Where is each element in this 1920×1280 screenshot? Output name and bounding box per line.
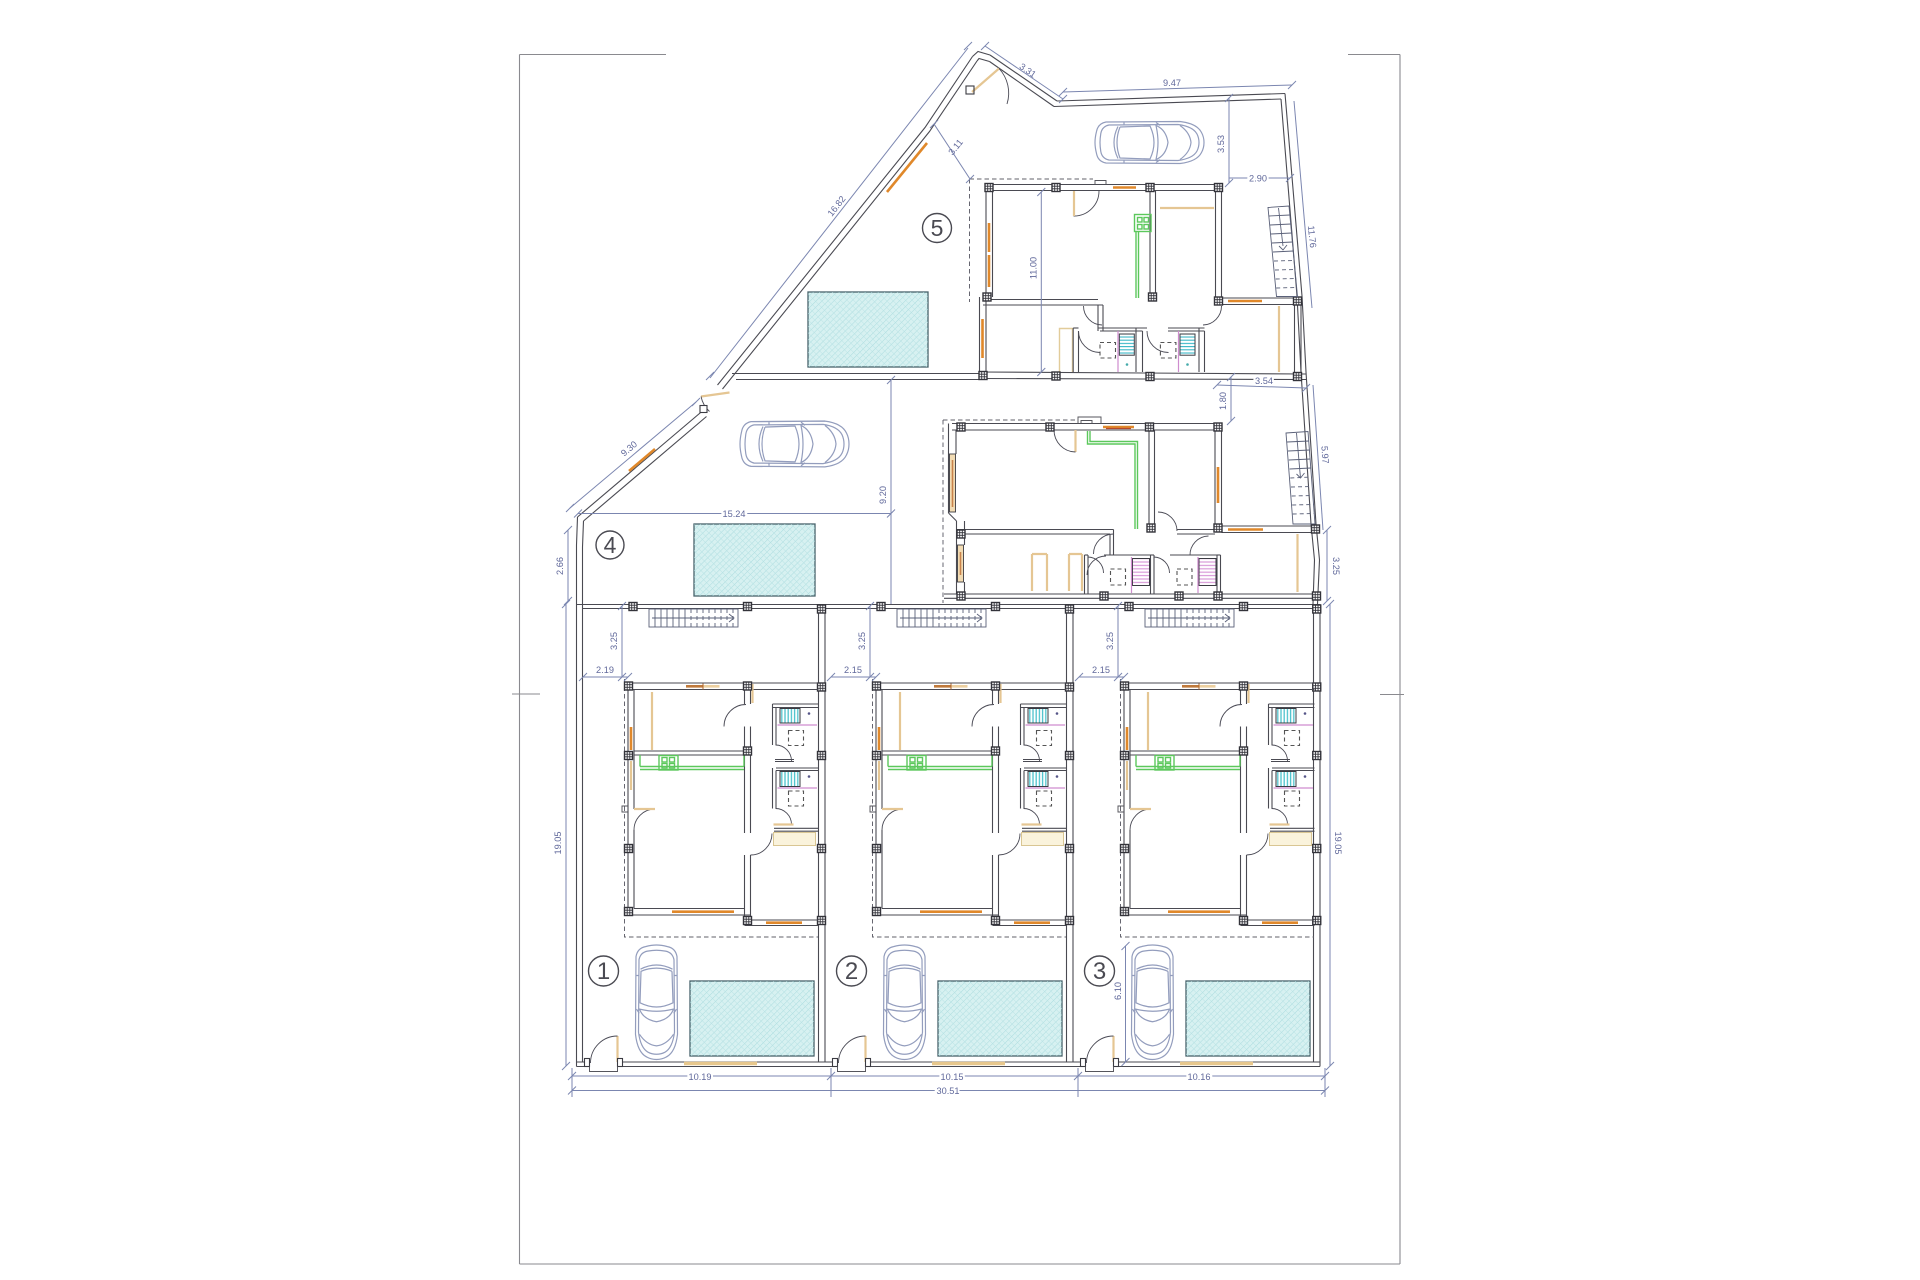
svg-text:10.19: 10.19 xyxy=(689,1072,712,1082)
svg-text:11.00: 11.00 xyxy=(1029,257,1039,279)
svg-text:2.15: 2.15 xyxy=(1092,665,1110,675)
svg-text:5.97: 5.97 xyxy=(1319,446,1330,465)
svg-text:5: 5 xyxy=(931,215,944,241)
svg-text:6.10: 6.10 xyxy=(1113,982,1123,1000)
svg-text:3: 3 xyxy=(1093,958,1106,985)
svg-text:3.25: 3.25 xyxy=(609,632,619,650)
svg-text:2: 2 xyxy=(845,958,858,985)
svg-text:3.25: 3.25 xyxy=(857,632,867,650)
svg-text:2.19: 2.19 xyxy=(596,665,614,675)
svg-text:3.53: 3.53 xyxy=(1216,135,1226,153)
svg-text:10.15: 10.15 xyxy=(941,1072,964,1082)
svg-text:10.16: 10.16 xyxy=(1188,1072,1211,1082)
svg-text:4: 4 xyxy=(604,532,617,558)
svg-text:1: 1 xyxy=(597,958,610,985)
svg-text:2.15: 2.15 xyxy=(844,665,862,675)
svg-text:3.54: 3.54 xyxy=(1255,376,1273,386)
svg-text:9.47: 9.47 xyxy=(1163,78,1181,88)
svg-text:2.66: 2.66 xyxy=(555,557,565,575)
svg-text:30.51: 30.51 xyxy=(937,1086,960,1096)
svg-text:2.90: 2.90 xyxy=(1249,174,1267,184)
svg-text:3.25: 3.25 xyxy=(1105,632,1115,650)
svg-text:3.25: 3.25 xyxy=(1331,557,1341,575)
svg-text:15.24: 15.24 xyxy=(723,509,746,519)
svg-text:9.20: 9.20 xyxy=(878,486,888,504)
svg-text:19.05: 19.05 xyxy=(1333,832,1343,855)
svg-text:19.05: 19.05 xyxy=(553,832,563,855)
svg-text:1.80: 1.80 xyxy=(1218,392,1228,410)
